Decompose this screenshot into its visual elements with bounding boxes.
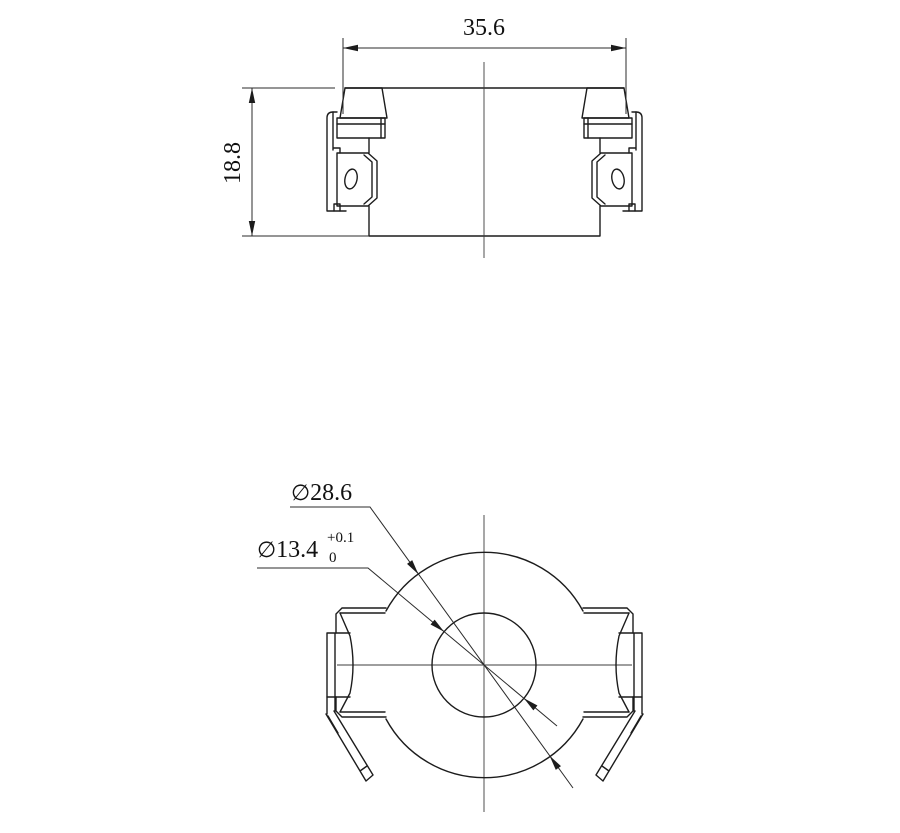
inner-diameter-label: ∅13.4 [257,537,318,563]
drawing-page: 35.6 18.8 ∅28.6 ∅13.4 +0.1 0 [0,0,900,833]
dimension-arrowhead [249,221,255,236]
width-dimension: 35.6 [343,15,626,114]
dimension-arrowhead [249,88,255,103]
height-dimension-label: 18.8 [220,142,246,184]
left-terminal [327,88,387,211]
technical-drawing-canvas: 35.6 18.8 ∅28.6 ∅13.4 +0.1 0 [0,0,900,833]
dimension-arrowhead [611,45,626,51]
outer-diameter-callout: ∅28.6 [290,480,573,788]
right-clamp [583,608,643,781]
inner-diameter-tolerance-upper: +0.1 [327,530,354,546]
bottom-view [326,552,643,781]
outer-diameter-label: ∅28.6 [291,480,352,506]
extension-lines [343,38,626,114]
dimension-arrowhead [547,754,561,770]
height-dimension: 18.8 [220,88,369,236]
inner-diameter-callout: ∅13.4 +0.1 0 [257,530,557,726]
width-dimension-label: 35.6 [463,15,505,41]
dimension-arrowhead [343,45,358,51]
left-clamp [326,608,386,781]
inner-diameter-tolerance-lower: 0 [329,550,337,566]
right-terminal [582,88,642,211]
side-view [327,88,642,236]
reference-lines [242,88,369,236]
leader-line [257,568,557,726]
body-outline [369,138,600,236]
